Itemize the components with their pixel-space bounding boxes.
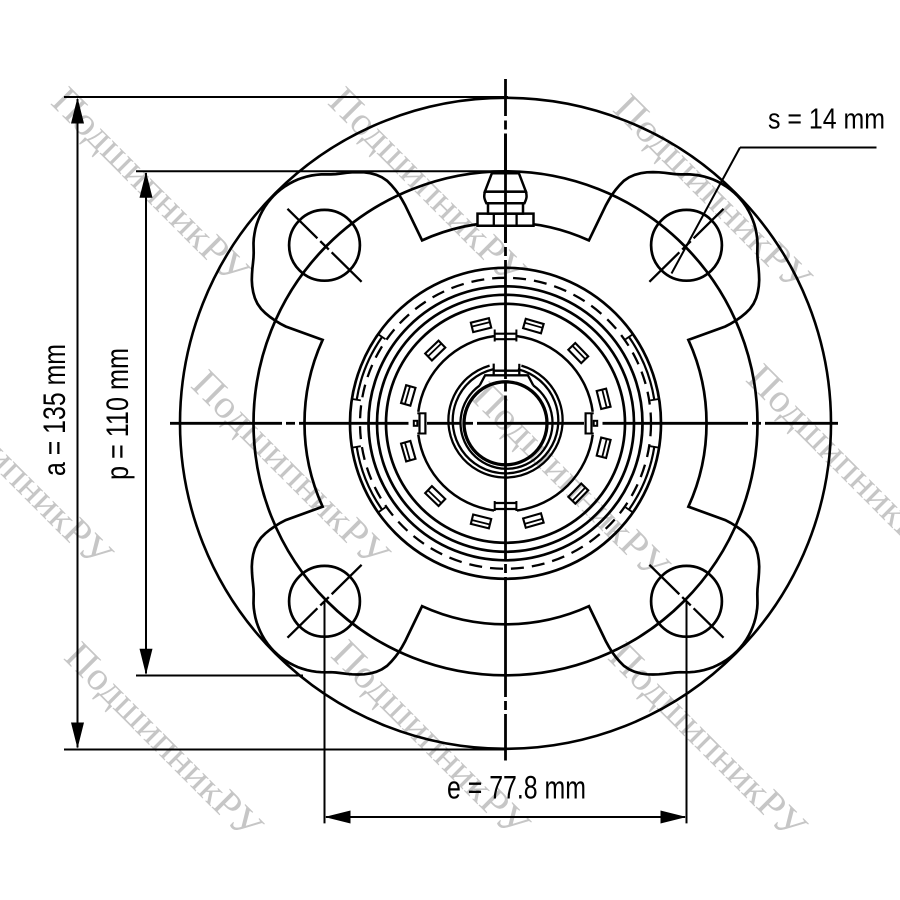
svg-text:p = 110 mm: p = 110 mm [99,348,135,480]
svg-text:s = 14 mm: s = 14 mm [768,104,885,136]
svg-text:e = 77.8 mm: e = 77.8 mm [447,770,586,806]
svg-text:a = 135 mm: a = 135 mm [36,344,72,476]
